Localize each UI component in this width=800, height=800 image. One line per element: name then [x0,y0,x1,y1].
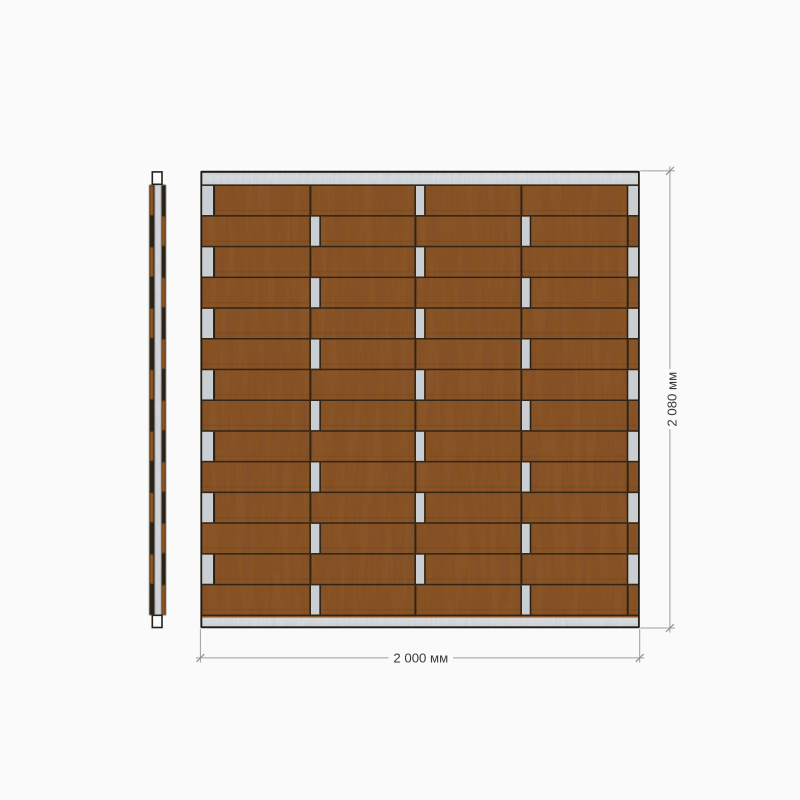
svg-text:2 000 мм: 2 000 мм [393,650,448,665]
svg-text:2 080 мм: 2 080 мм [665,372,680,427]
